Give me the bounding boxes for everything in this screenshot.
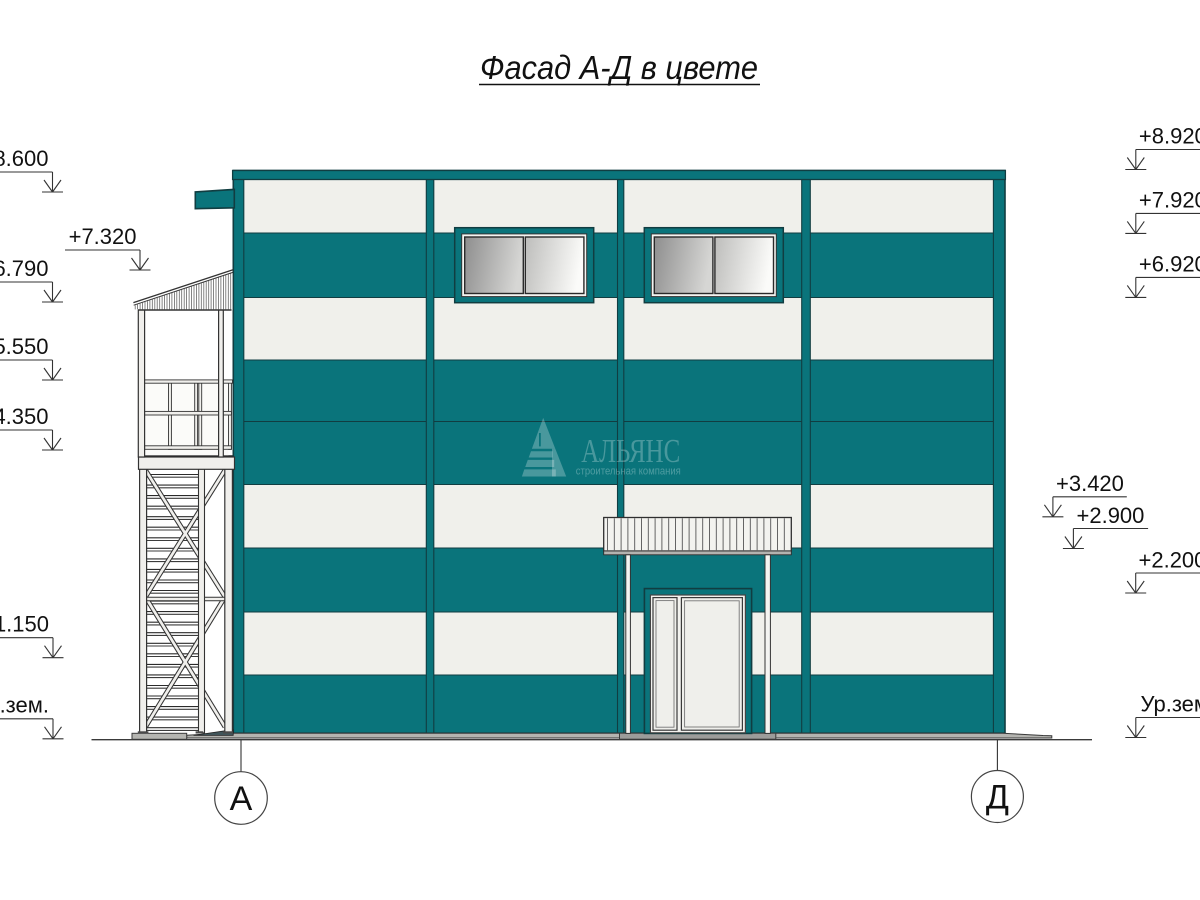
svg-text:6.790: 6.790 [0,256,49,281]
svg-text:+2.200: +2.200 [1139,548,1200,573]
svg-text:+8.920: +8.920 [1139,124,1200,149]
svg-text:строительная компания: строительная компания [576,465,681,477]
svg-text:4.350: 4.350 [0,404,49,429]
svg-text:+7.320: +7.320 [69,224,137,249]
svg-text:1.150: 1.150 [0,612,49,637]
svg-text:8.600: 8.600 [0,146,49,171]
svg-text:Фасад А-Д в цвете: Фасад А-Д в цвете [480,49,758,86]
svg-text:+3.420: +3.420 [1056,471,1124,496]
svg-text:+7.920: +7.920 [1139,188,1200,213]
svg-text:Д: Д [986,779,1009,817]
svg-text:+6.920: +6.920 [1139,252,1200,277]
svg-text:Ур.зем.: Ур.зем. [1141,692,1200,717]
svg-text:Ур.зем.: Ур.зем. [0,693,49,718]
svg-text:5.550: 5.550 [0,334,49,359]
svg-text:+2.900: +2.900 [1077,503,1145,528]
svg-text:А: А [230,780,253,818]
